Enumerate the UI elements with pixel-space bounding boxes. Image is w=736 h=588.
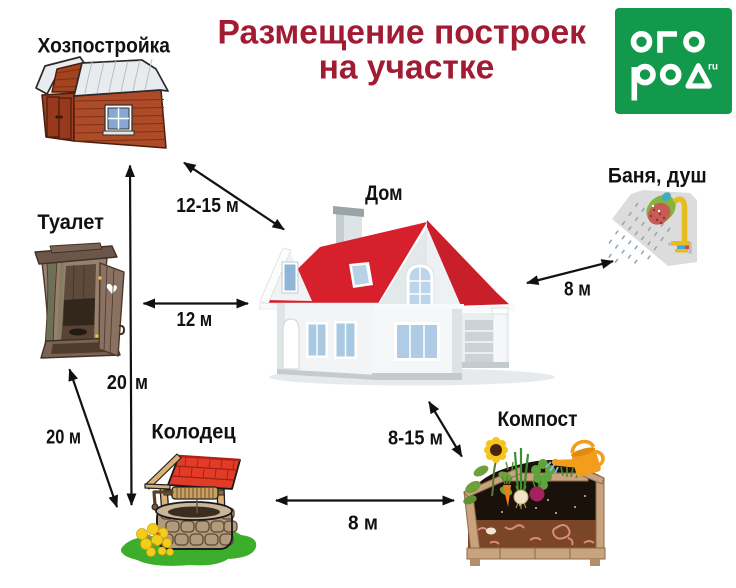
svg-text:м: м xyxy=(135,372,148,394)
svg-text:20: 20 xyxy=(107,372,127,394)
svg-text:Дом: Дом xyxy=(365,182,402,205)
svg-text:8 м: 8 м xyxy=(348,513,378,535)
svg-text:Туалет: Туалет xyxy=(37,211,104,234)
svg-text:Хозпостройка: Хозпостройка xyxy=(38,35,171,58)
svg-text:Размещение построек: Размещение построек xyxy=(218,14,587,52)
svg-text:8 м: 8 м xyxy=(564,279,591,301)
svg-text:Компост: Компост xyxy=(498,408,578,431)
svg-text:Баня, душ: Баня, душ xyxy=(608,165,707,188)
svg-text:на участке: на участке xyxy=(319,48,495,86)
svg-text:ru: ru xyxy=(708,62,718,73)
svg-text:8-15 м: 8-15 м xyxy=(388,428,443,450)
svg-text:20 м: 20 м xyxy=(46,427,81,449)
svg-text:Колодец: Колодец xyxy=(151,421,235,444)
svg-text:12-15 м: 12-15 м xyxy=(176,195,239,217)
svg-text:12 м: 12 м xyxy=(177,309,213,331)
